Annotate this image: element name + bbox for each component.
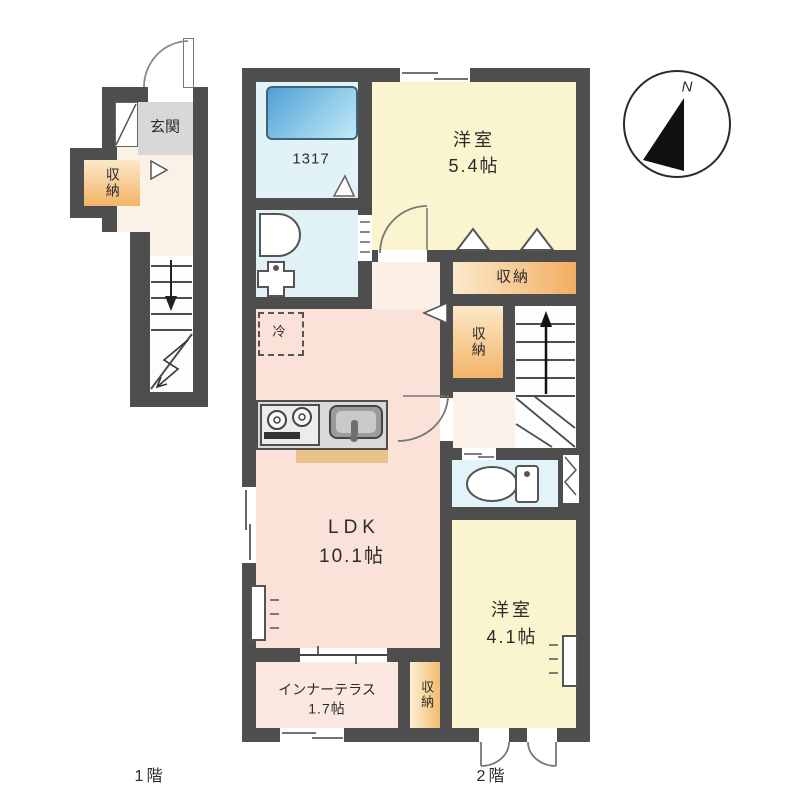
f2-wall-washroom-bottom — [242, 297, 372, 309]
door-opening-toilet — [462, 448, 496, 460]
f2-wall-wet-column — [358, 68, 372, 309]
window-terrace-bottom — [280, 728, 344, 742]
room-ldk — [256, 309, 440, 648]
bedroom-b-size-label: 4.1帖 — [486, 626, 537, 649]
floor-plan-canvas: 玄関 収納 1317 洋室 5.4帖 収納 収納 冷 LDK 10.1帖 洋室 … — [0, 0, 800, 800]
ldk-name-label: LDK — [328, 516, 380, 540]
terrace-size-label: 1.7帖 — [308, 700, 345, 718]
f1-hall-lower — [150, 226, 193, 256]
room-hall-lower — [453, 392, 515, 448]
ldk-size-label: 10.1帖 — [319, 545, 385, 569]
room-washroom — [256, 210, 358, 297]
f1-entrance-door-leaf — [183, 38, 194, 88]
door-opening-bottom-right — [527, 728, 557, 742]
closet-a-label: 収納 — [496, 269, 530, 288]
f1-stairs-area — [150, 256, 193, 392]
room-stairs-2f — [515, 306, 576, 448]
window-top-bedroom-a — [400, 68, 470, 82]
f2-wall-right — [576, 68, 590, 742]
f1-entrance-opening — [148, 87, 193, 102]
entrance-label: 玄関 — [150, 119, 180, 138]
room-hall-upper — [372, 262, 440, 309]
bathtub — [266, 86, 358, 140]
compass-icon — [624, 71, 730, 177]
bedroom-a-name-label: 洋室 — [453, 129, 495, 152]
f2-wall-bath-divider — [256, 198, 358, 210]
f2-wall-below-closet — [440, 378, 515, 392]
room-toilet — [452, 460, 558, 507]
terrace-name-label: インナーテラス — [278, 681, 376, 699]
louver-window-toilet — [563, 455, 579, 503]
compass-north-label: N — [682, 79, 693, 98]
kitchen-counter-edge — [296, 450, 388, 463]
closet-b-label: 収納 — [469, 326, 487, 358]
refrigerator-label: 冷 — [272, 324, 285, 340]
kitchen-counter — [256, 400, 388, 450]
window-seat-bedroom-b — [562, 635, 578, 687]
floor2-caption: 2階 — [477, 767, 508, 787]
f2-wall-terrace-top-left — [242, 648, 300, 662]
bedroom-b-name-label: 洋室 — [491, 599, 533, 622]
window-ldk-left — [242, 487, 256, 563]
room-bedroom-4-1 — [452, 520, 576, 728]
window-seat-ldk — [250, 585, 266, 641]
f2-wall-closet-c-left — [398, 648, 410, 742]
door-opening-ldk-hall — [440, 398, 453, 441]
entrance-door-arc — [144, 41, 188, 87]
f2-wall-closet-strip-bottom — [440, 294, 590, 306]
door-opening-bedroom-a — [378, 250, 427, 262]
french-doors-bottom — [481, 742, 556, 766]
bedroom-a-size-label: 5.4帖 — [448, 155, 499, 178]
f1-shoe-cabinet — [115, 102, 138, 147]
floor1-caption: 1階 — [135, 767, 166, 787]
unit-bath-size-label: 1317 — [292, 151, 329, 170]
door-opening-bottom-left — [479, 728, 509, 742]
sliding-door-washroom — [358, 215, 372, 261]
f2-wall-terrace-top-right — [387, 648, 453, 662]
f1-storage-label: 収納 — [103, 167, 121, 199]
closet-c-label: 収納 — [418, 680, 434, 710]
